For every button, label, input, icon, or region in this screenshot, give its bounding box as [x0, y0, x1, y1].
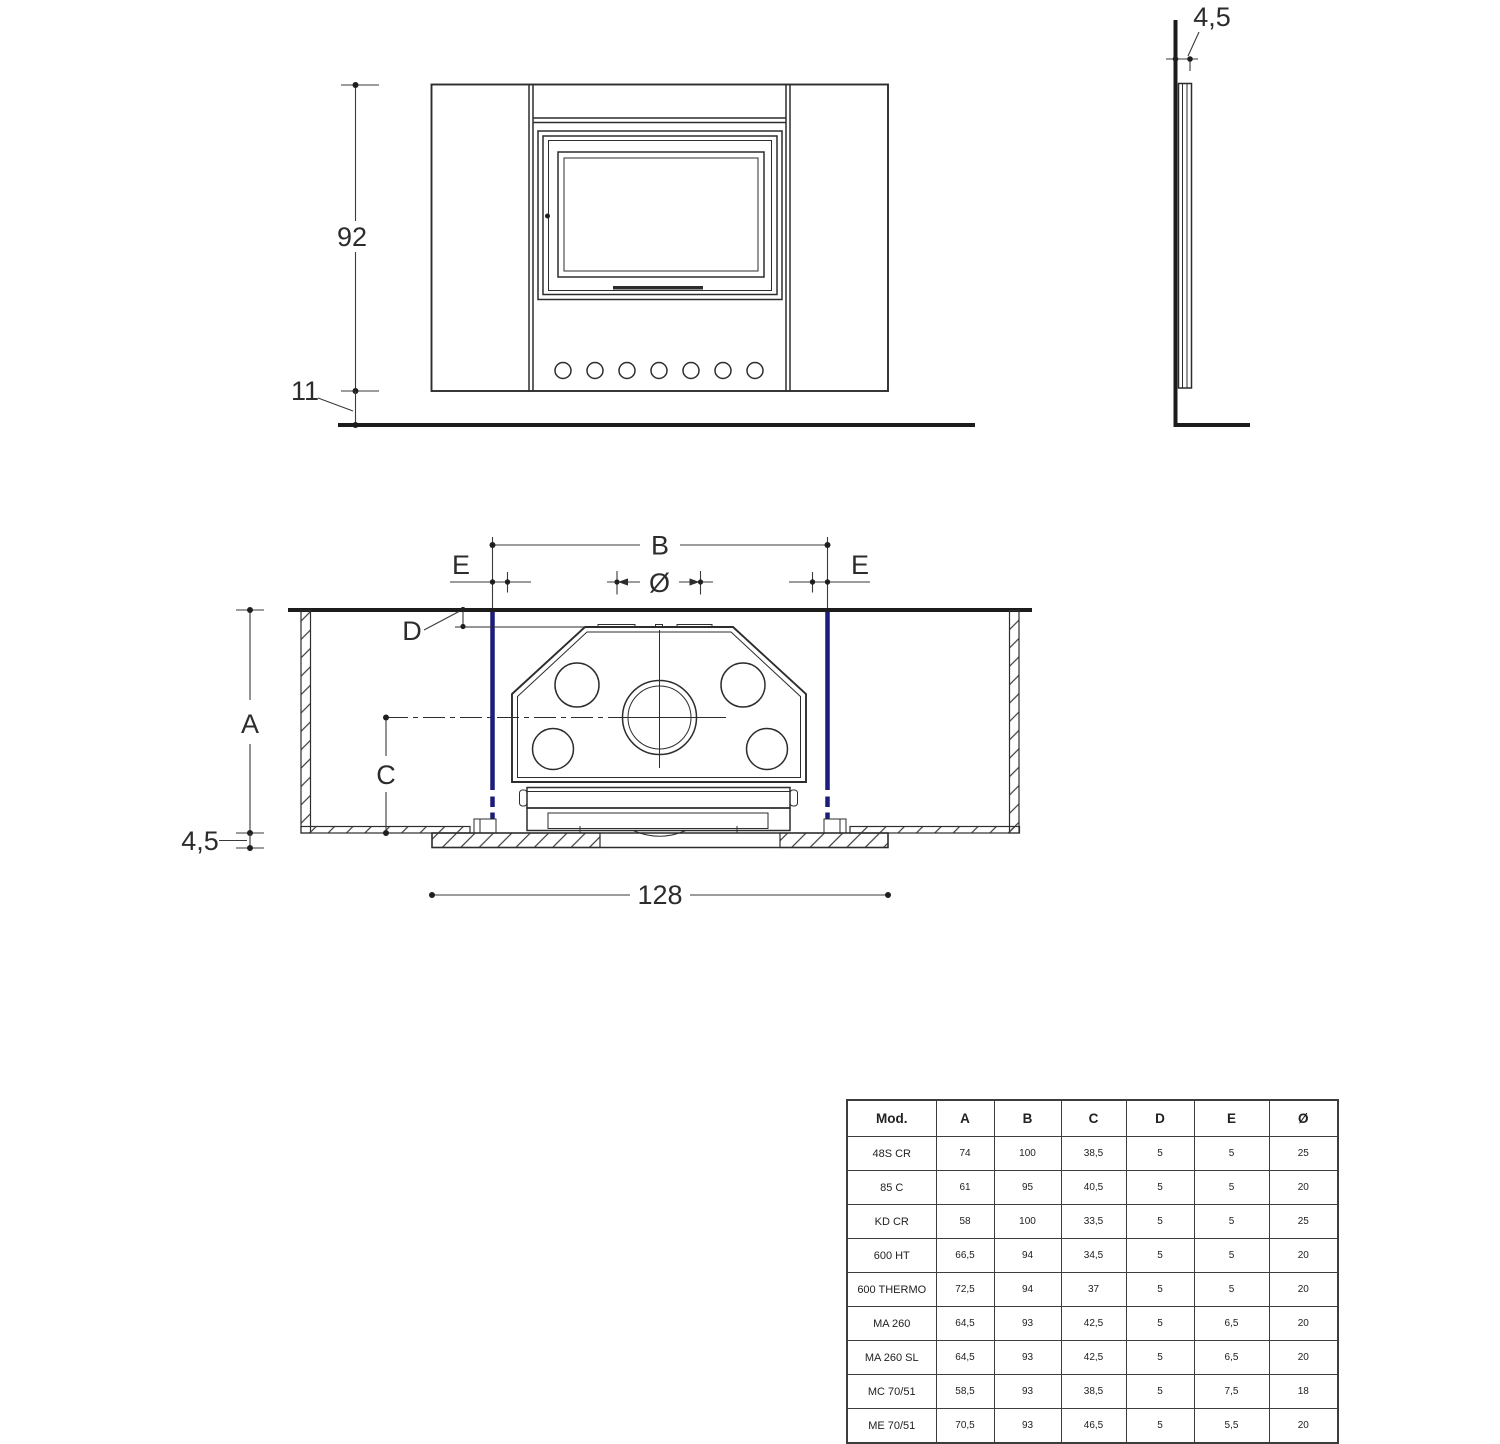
value-cell: 25	[1269, 1205, 1338, 1239]
value-cell: 5	[1126, 1137, 1194, 1171]
dimension-128: 128	[429, 880, 891, 910]
value-cell: 64,5	[936, 1341, 994, 1375]
value-cell: 5	[1126, 1341, 1194, 1375]
column-header-4: D	[1126, 1100, 1194, 1137]
value-cell: 20	[1269, 1171, 1338, 1205]
spec-table: Mod.ABCDEØ 48S CR7410038,5552585 C619540…	[846, 1099, 1339, 1444]
panel-profile	[1179, 84, 1192, 389]
value-cell: 5	[1194, 1273, 1269, 1307]
dimension-11: 11	[291, 376, 359, 428]
value-cell: 100	[994, 1137, 1061, 1171]
panel-thickness-label: 4,5	[1193, 2, 1231, 32]
value-cell: 46,5	[1061, 1409, 1126, 1444]
dimension-diameter: Ø	[607, 568, 713, 598]
value-cell: 20	[1269, 1239, 1338, 1273]
value-cell: 58,5	[936, 1375, 994, 1409]
value-cell: 94	[994, 1273, 1061, 1307]
vent-holes	[555, 363, 763, 379]
value-cell: 5	[1126, 1239, 1194, 1273]
dim-e-left-label: E	[452, 550, 470, 580]
door-handle-bar	[613, 286, 703, 290]
value-cell: 66,5	[936, 1239, 994, 1273]
value-cell: 61	[936, 1171, 994, 1205]
table-row: 85 C619540,55520	[847, 1171, 1338, 1205]
value-cell: 5	[1126, 1375, 1194, 1409]
column-header-1: A	[936, 1100, 994, 1137]
stove-front-plan	[520, 788, 798, 837]
dim-diameter-label: Ø	[649, 568, 670, 598]
dim-d-label: D	[402, 616, 422, 646]
value-cell: 93	[994, 1341, 1061, 1375]
value-cell: 20	[1269, 1341, 1338, 1375]
value-cell: 93	[994, 1409, 1061, 1444]
model-cell: MC 70/51	[847, 1375, 936, 1409]
value-cell: 33,5	[1061, 1205, 1126, 1239]
model-cell: MA 260 SL	[847, 1341, 936, 1375]
flue-outlet	[623, 630, 727, 768]
plinth-height-label: 11	[291, 376, 319, 406]
table-row: 48S CR7410038,55525	[847, 1137, 1338, 1171]
value-cell: 5	[1194, 1239, 1269, 1273]
dimension-c: C	[376, 715, 396, 837]
model-cell: MA 260	[847, 1307, 936, 1341]
column-header-0: Mod.	[847, 1100, 936, 1137]
value-cell: 64,5	[936, 1307, 994, 1341]
table-row: 600 HT66,59434,55520	[847, 1239, 1338, 1273]
table-row: 600 THERMO72,594375520	[847, 1273, 1338, 1307]
value-cell: 20	[1269, 1307, 1338, 1341]
column-header-5: E	[1194, 1100, 1269, 1137]
front-height-label: 92	[337, 222, 367, 252]
base-plate	[432, 819, 888, 848]
column-header-3: C	[1061, 1100, 1126, 1137]
dim-b-label: B	[651, 531, 669, 561]
model-cell: 600 THERMO	[847, 1273, 936, 1307]
value-cell: 95	[994, 1171, 1061, 1205]
table-row: ME 70/5170,59346,555,520	[847, 1409, 1338, 1444]
dimension-e-right: E	[789, 550, 870, 593]
value-cell: 58	[936, 1205, 994, 1239]
dimension-92: 92	[337, 82, 379, 394]
firebox-door	[538, 131, 782, 300]
dim-wall-label: 4,5	[181, 826, 219, 856]
dim-e-right-label: E	[851, 550, 869, 580]
front-view: 92 11	[291, 82, 975, 428]
value-cell: 5	[1126, 1205, 1194, 1239]
mounting-bracket-right	[824, 819, 846, 833]
dim-c-label: C	[376, 760, 396, 790]
value-cell: 5,5	[1194, 1409, 1269, 1444]
value-cell: 93	[994, 1375, 1061, 1409]
table-header-row: Mod.ABCDEØ	[847, 1100, 1338, 1137]
value-cell: 20	[1269, 1273, 1338, 1307]
value-cell: 6,5	[1194, 1341, 1269, 1375]
table-row: KD CR5810033,55525	[847, 1205, 1338, 1239]
model-cell: KD CR	[847, 1205, 936, 1239]
dimension-a: A	[236, 607, 264, 836]
model-cell: 85 C	[847, 1171, 936, 1205]
value-cell: 5	[1194, 1171, 1269, 1205]
technical-drawing-sheet: 92 11 4,5	[0, 0, 1500, 1427]
column-header-6: Ø	[1269, 1100, 1338, 1137]
value-cell: 7,5	[1194, 1375, 1269, 1409]
side-view: 4,5	[1166, 2, 1250, 425]
value-cell: 74	[936, 1137, 994, 1171]
value-cell: 100	[994, 1205, 1061, 1239]
value-cell: 5	[1126, 1171, 1194, 1205]
value-cell: 72,5	[936, 1273, 994, 1307]
value-cell: 70,5	[936, 1409, 994, 1444]
value-cell: 37	[1061, 1273, 1126, 1307]
plan-view: B E E Ø D	[181, 531, 1032, 911]
value-cell: 40,5	[1061, 1171, 1126, 1205]
stove-body-plan	[386, 625, 806, 783]
value-cell: 94	[994, 1239, 1061, 1273]
table-row: MA 26064,59342,556,520	[847, 1307, 1338, 1341]
value-cell: 6,5	[1194, 1307, 1269, 1341]
table-row: MC 70/5158,59338,557,518	[847, 1375, 1338, 1409]
value-cell: 42,5	[1061, 1341, 1126, 1375]
column-header-2: B	[994, 1100, 1061, 1137]
value-cell: 38,5	[1061, 1375, 1126, 1409]
door-hinge-dot	[545, 214, 550, 219]
value-cell: 34,5	[1061, 1239, 1126, 1273]
dimension-e-left: E	[450, 550, 531, 593]
value-cell: 18	[1269, 1375, 1338, 1409]
mounting-bracket-left	[474, 819, 496, 833]
value-cell: 42,5	[1061, 1307, 1126, 1341]
table-row: MA 260 SL64,59342,556,520	[847, 1341, 1338, 1375]
value-cell: 93	[994, 1307, 1061, 1341]
value-cell: 38,5	[1061, 1137, 1126, 1171]
model-cell: ME 70/51	[847, 1409, 936, 1444]
dim-a-label: A	[241, 709, 259, 739]
model-cell: 48S CR	[847, 1137, 936, 1171]
model-cell: 600 HT	[847, 1239, 936, 1273]
value-cell: 5	[1194, 1137, 1269, 1171]
value-cell: 25	[1269, 1137, 1338, 1171]
dim-width-label: 128	[637, 880, 682, 910]
value-cell: 5	[1126, 1273, 1194, 1307]
value-cell: 20	[1269, 1409, 1338, 1444]
value-cell: 5	[1126, 1307, 1194, 1341]
value-cell: 5	[1126, 1409, 1194, 1444]
table-body: 48S CR7410038,5552585 C619540,55520KD CR…	[847, 1137, 1338, 1444]
value-cell: 5	[1194, 1205, 1269, 1239]
